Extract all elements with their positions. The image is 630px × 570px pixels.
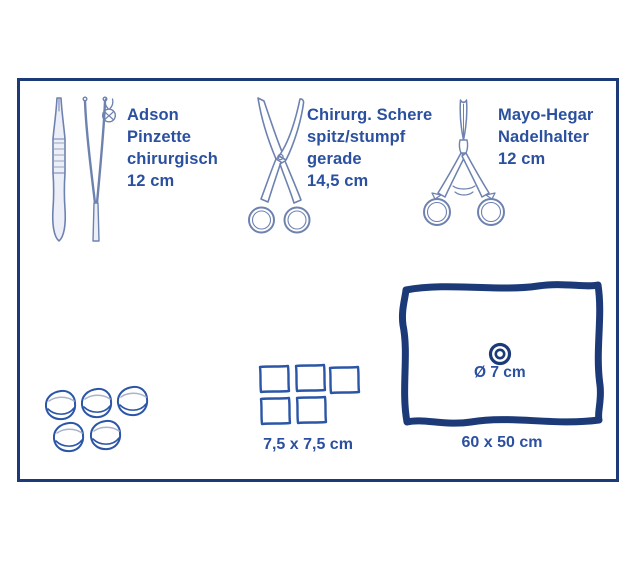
label-line: chirurgisch [127, 148, 218, 170]
drape-illustration [393, 275, 611, 429]
swab-balls-illustration [44, 386, 156, 460]
label-line: 12 cm [498, 148, 593, 170]
label-line: Chirurg. Schere [307, 104, 432, 126]
instrument-set-diagram: Adson Pinzette chirurgisch 12 cm Chirurg… [0, 0, 630, 570]
label-line: gerade [307, 148, 432, 170]
drape-size-label: 60 x 50 cm [394, 434, 610, 452]
gauze-size-label: 7,5 x 7,5 cm [252, 436, 364, 454]
label-line: spitz/stumpf [307, 126, 432, 148]
label-line: Adson [127, 104, 218, 126]
forceps-teeth-icon [99, 98, 119, 125]
drape-hole-diameter-label: Ø 7 cm [474, 364, 526, 382]
label-line: 14,5 cm [307, 170, 432, 192]
needle-holder-label: Mayo-Hegar Nadelhalter 12 cm [498, 104, 593, 170]
scissors-label: Chirurg. Schere spitz/stumpf gerade 14,5… [307, 104, 432, 192]
label-line: Mayo-Hegar [498, 104, 593, 126]
needle-holder-illustration [421, 98, 509, 238]
gauze-compresses-illustration [257, 362, 361, 426]
label-line: Nadelhalter [498, 126, 593, 148]
label-line: Pinzette [127, 126, 218, 148]
adson-label: Adson Pinzette chirurgisch 12 cm [127, 104, 218, 192]
label-line: 12 cm [127, 170, 218, 192]
